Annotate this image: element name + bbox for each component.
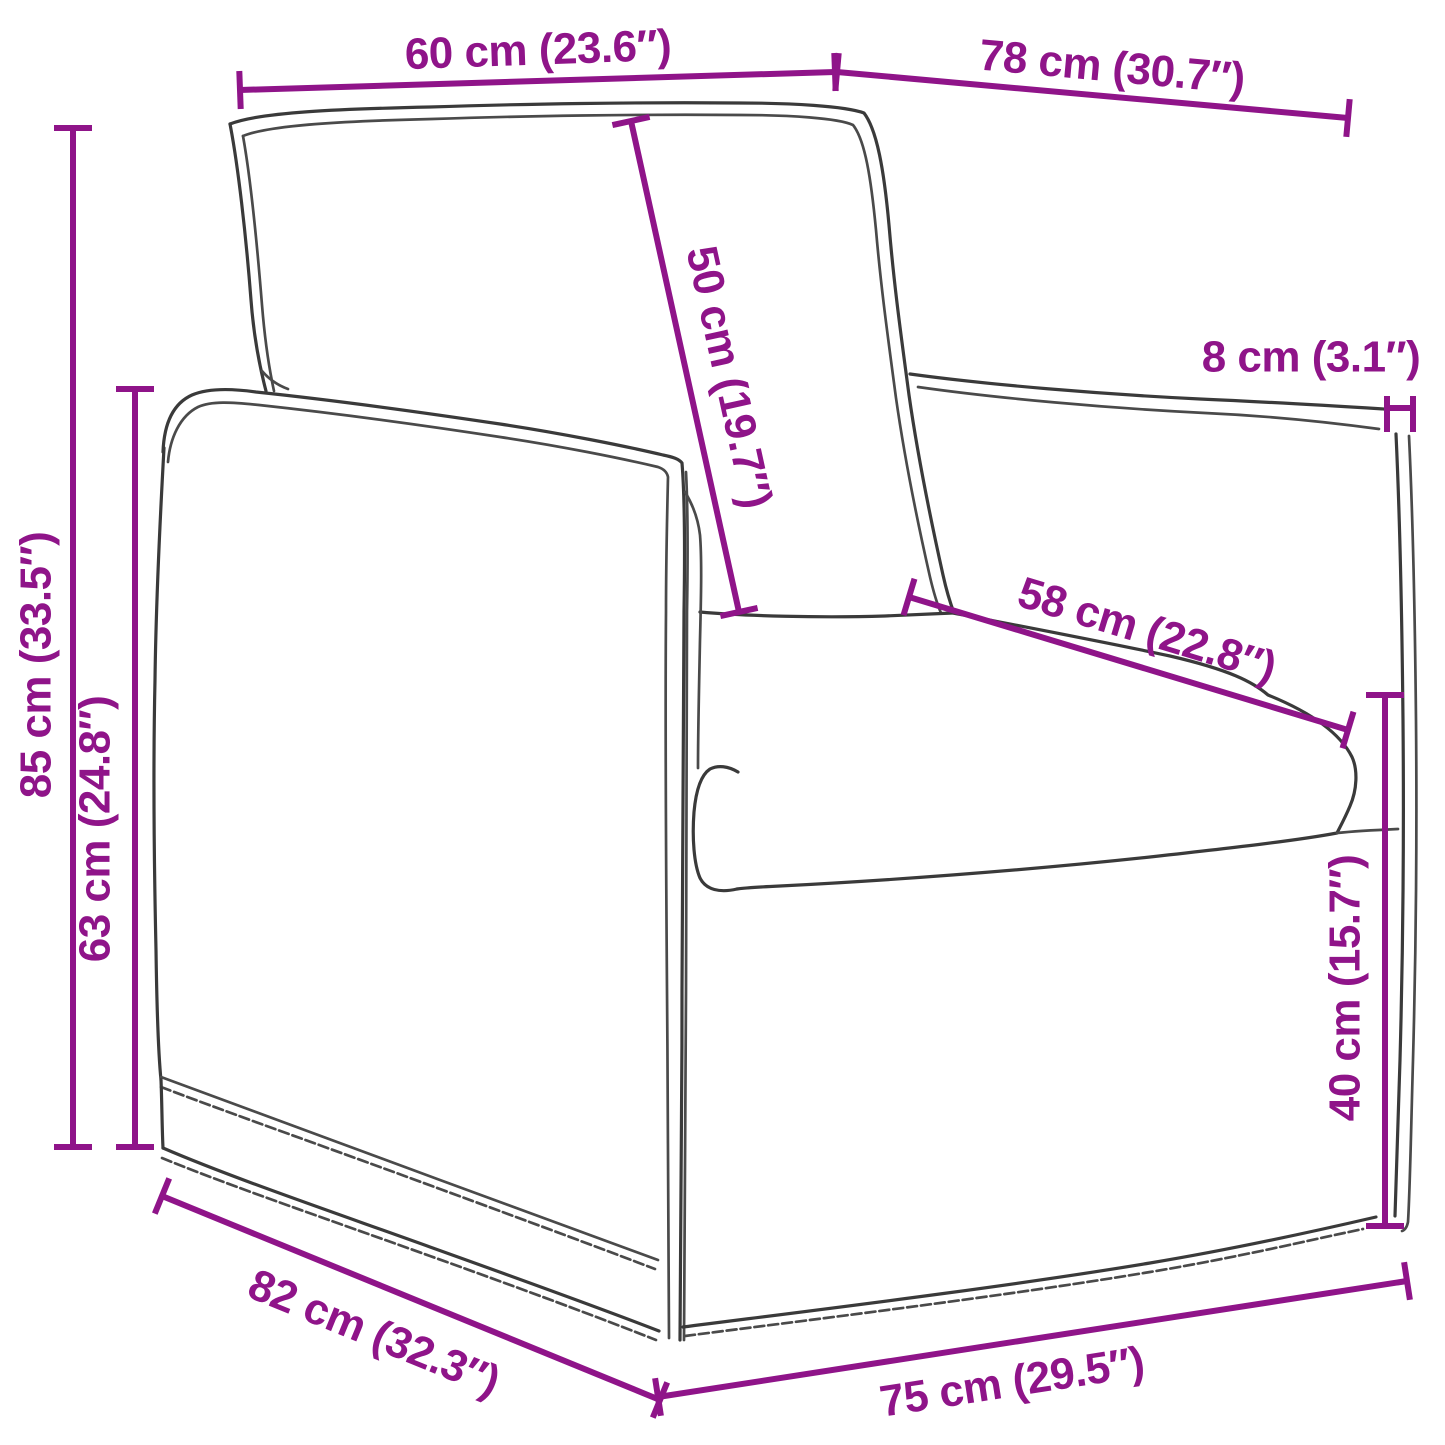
svg-text:40 cm (15.7″): 40 cm (15.7″) <box>1321 855 1370 1122</box>
svg-text:63 cm (24.8″): 63 cm (24.8″) <box>71 696 120 963</box>
svg-text:85 cm (33.5″): 85 cm (33.5″) <box>12 532 61 799</box>
svg-text:8 cm (3.1″): 8 cm (3.1″) <box>1202 333 1421 382</box>
svg-text:60 cm (23.6″): 60 cm (23.6″) <box>404 21 672 79</box>
